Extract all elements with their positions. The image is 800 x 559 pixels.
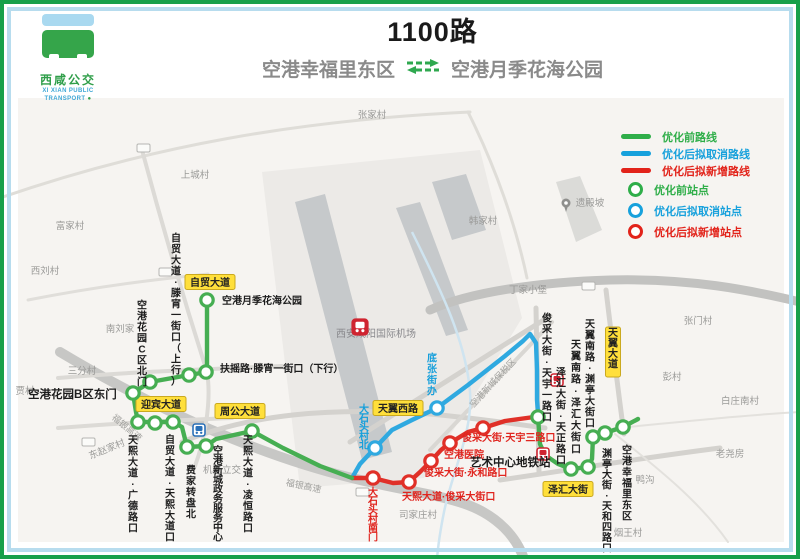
stop-name-label: 大石头村南门 (367, 486, 378, 544)
legend-item: 优化后拟新增路线 (621, 162, 750, 179)
legend-label: 优化后拟取消路线 (662, 146, 750, 162)
bus-stop-marker (200, 366, 212, 378)
stop-name-label: 渊亭大街·天和四路口 (601, 447, 613, 555)
route-number-title: 1100路 (65, 10, 800, 49)
stop-name-label: 大石头村北 (358, 403, 369, 452)
map-legend: 优化前路线优化后拟取消路线优化后拟新增路线优化前站点优化后拟取消站点优化后拟新增… (621, 128, 750, 242)
village-label: 司家庄村 (399, 509, 438, 521)
legend-line-swatch (621, 168, 651, 173)
road-label: 周公大道 (220, 405, 260, 418)
header: 西咸公交 XI XIAN PUBLIC TRANSPORT ● 1100路 空港… (0, 10, 800, 98)
village-label: 西安咸阳国际机场 (336, 327, 416, 340)
village-label: 南刘家 (106, 323, 135, 335)
stop-name-label: 空港新城政务服务中心 (213, 444, 224, 543)
legend-item: 优化前站点 (621, 179, 750, 200)
legend-item: 优化后拟新增站点 (621, 221, 750, 242)
road-label: 天翼大道 (607, 327, 619, 371)
stop-name-label: 天翼南路·泽汇大街口 (570, 339, 582, 455)
bus-stop-marker (599, 427, 611, 439)
road-label: 自贸大道 (190, 276, 230, 289)
terminal-to: 空港月季花海公园 (451, 55, 603, 82)
bus-stop-marker (183, 369, 195, 381)
map-pin-icon (564, 201, 568, 205)
village-label: 韩家村 (469, 215, 498, 227)
village-label: 丁家小堡 (509, 284, 548, 296)
legend-label: 优化后拟取消站点 (654, 203, 742, 219)
road-label: 迎宾大道 (141, 398, 181, 411)
legend-line-swatch (621, 151, 651, 156)
stop-name-label: 费家转盘北 (186, 463, 197, 520)
bus-stop-marker (582, 461, 594, 473)
stop-name-label: 自贸大道·滕宵一街口（上行） (170, 231, 182, 387)
bus-stop-marker (167, 416, 179, 428)
village-label: 张家村 (358, 109, 387, 121)
village-label: 西刘村 (31, 265, 60, 277)
legend-label: 优化后拟新增路线 (662, 163, 750, 179)
road-shield (82, 438, 95, 446)
village-label: 上城村 (181, 169, 210, 181)
village-label: 彭村 (662, 371, 682, 383)
bus-stop-marker (444, 437, 456, 449)
metro-station-icon (352, 319, 368, 335)
poi-label: 遗殿坡 (576, 197, 605, 209)
village-label: 鸭沟 (635, 474, 654, 486)
stop-name-label: 俊采大街·天宇三路口 (462, 431, 555, 444)
bus-stop-marker (403, 476, 415, 488)
legend-label: 优化前路线 (662, 129, 717, 145)
village-label: 张门村 (684, 315, 713, 327)
legend-label: 优化前站点 (654, 182, 709, 198)
bus-stop-marker (200, 440, 212, 452)
legend-item: 优化前路线 (621, 128, 750, 145)
stop-name-label: 空港花园C区北门 (137, 298, 148, 388)
metro-station-icon (193, 424, 205, 436)
legend-stop-swatch (628, 182, 643, 197)
bus-stop-marker (431, 402, 443, 414)
road-label: 天翼西路 (378, 402, 419, 415)
village-label: 三分村 (68, 365, 97, 377)
bus-stop-marker (127, 387, 139, 399)
stop-name-label: 天翼南路·渊亭大街口 (584, 318, 596, 429)
legend-item: 优化后拟取消站点 (621, 200, 750, 221)
stop-name-label: 底张街办 (426, 351, 438, 397)
bus-stop-marker (201, 294, 213, 306)
double-arrow-icon (405, 58, 441, 80)
road-shield (137, 144, 150, 152)
village-label: 老尧房 (716, 448, 745, 460)
stop-name-label: 自贸大道·天熙大道口 (165, 433, 176, 543)
bus-route-poster: 福银高速福银高速空港新城保税区张家村上城村富家村西刘村南刘家三分村贾村东赵家村韩… (0, 0, 800, 559)
stop-name-label: 扶摇路·滕宵一街口（下行） (220, 362, 343, 375)
legend-label: 优化后拟新增站点 (654, 224, 742, 240)
logo-en-text: XI XIAN PUBLIC TRANSPORT ● (30, 88, 106, 103)
road-label: 泽汇大街 (548, 483, 588, 496)
village-label: 富家村 (56, 220, 85, 232)
bus-stop-marker (617, 421, 629, 433)
stop-name-label: 天熙大道·俊采大街口 (402, 490, 495, 503)
road-shield (582, 282, 595, 290)
bus-stop-marker (425, 455, 437, 467)
legend-stop-swatch (628, 224, 643, 239)
route-terminals: 空港幸福里东区 空港月季花海公园 (65, 55, 800, 82)
bus-stop-marker (149, 417, 161, 429)
terminal-from: 空港幸福里东区 (262, 55, 395, 82)
legend-item: 优化后拟取消路线 (621, 145, 750, 162)
stop-name-label: 艺术中心地铁站 (470, 455, 551, 469)
stop-name-label: 空港花园B区东门 (28, 387, 117, 401)
village-label: 烟王村 (614, 527, 643, 539)
legend-line-swatch (621, 134, 651, 139)
bus-stop-marker (132, 416, 144, 428)
bus-stop-marker (369, 442, 381, 454)
stop-name-label: 空港幸福里东区 (621, 443, 633, 522)
legend-stop-swatch (628, 203, 643, 218)
bus-stop-marker (181, 441, 193, 453)
village-label: 白庄南村 (721, 395, 760, 407)
bus-stop-marker (367, 472, 379, 484)
bus-stop-marker (565, 463, 577, 475)
stop-name-label: 空港月季花海公园 (222, 294, 302, 307)
